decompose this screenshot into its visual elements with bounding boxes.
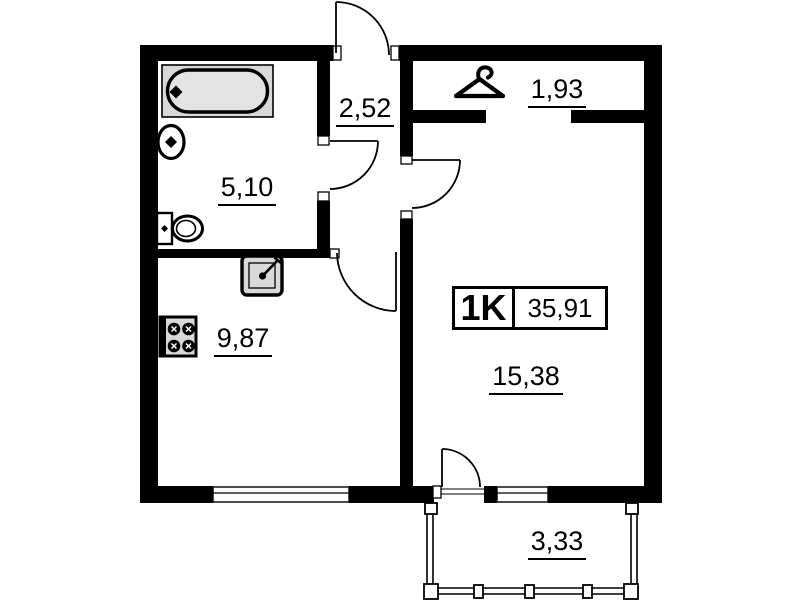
balcony-post-top-right — [626, 503, 638, 514]
washbasin-icon — [158, 126, 184, 159]
wardrobe-area-label: 1,93 — [502, 76, 612, 108]
wall-wardrobe-partition-left — [411, 110, 486, 123]
floor-plan: 2,52 1,93 5,10 9,87 15,38 3,33 1K 35,91 — [0, 0, 799, 600]
balcony-post-mid-3 — [583, 585, 592, 598]
balcony-post-top-left — [425, 503, 437, 514]
kitchen-area-label: 9,87 — [188, 325, 298, 357]
kitchen-window — [213, 487, 349, 502]
wall-outer-left — [140, 45, 158, 503]
entrance-door — [336, 2, 389, 55]
apartment-info-box: 1K 35,91 — [452, 286, 608, 330]
room-hallway — [330, 61, 400, 251]
wall-kitchen-living-divider — [400, 219, 413, 486]
toilet-icon — [157, 213, 203, 244]
jamb-bathroom-bottom — [318, 192, 329, 201]
balcony-post-mid-1 — [474, 585, 483, 598]
apartment-total-area: 35,91 — [515, 289, 605, 327]
balcony-door-threshold — [441, 489, 484, 494]
jamb-living-bottom — [401, 211, 412, 219]
jamb-entrance-right — [391, 46, 399, 60]
balcony-post-corner-left — [424, 584, 438, 599]
jamb-balcony — [433, 486, 441, 498]
bathtub-icon — [162, 65, 273, 117]
bathroom-area-label: 5,10 — [192, 174, 302, 206]
living-room-window — [497, 487, 548, 502]
wall-outer-top-right — [399, 45, 662, 61]
wall-bottom-kitchen-left — [140, 486, 213, 503]
hallway-area-label: 2,52 — [310, 95, 420, 127]
wall-wardrobe-partition-right — [571, 110, 644, 123]
floor-plan-drawing — [0, 0, 799, 600]
living-room-area-label: 15,38 — [471, 363, 581, 395]
balcony-post-mid-2 — [525, 585, 534, 598]
wall-bottom-mullion — [484, 486, 497, 503]
jamb-bathroom-top — [318, 136, 329, 145]
wall-outer-right — [644, 45, 662, 503]
balcony-post-corner-right — [624, 584, 638, 599]
wall-bottom-center — [349, 486, 434, 503]
balcony-area-label: 3,33 — [502, 528, 612, 560]
jamb-entrance-left — [333, 46, 341, 60]
kitchen-sink-icon — [242, 256, 282, 295]
apartment-type-label: 1K — [455, 289, 515, 327]
wall-bathroom-kitchen-divider — [140, 249, 330, 258]
jamb-living-top — [401, 156, 412, 164]
wall-bottom-right — [548, 486, 662, 503]
wall-outer-top-left — [140, 45, 333, 61]
